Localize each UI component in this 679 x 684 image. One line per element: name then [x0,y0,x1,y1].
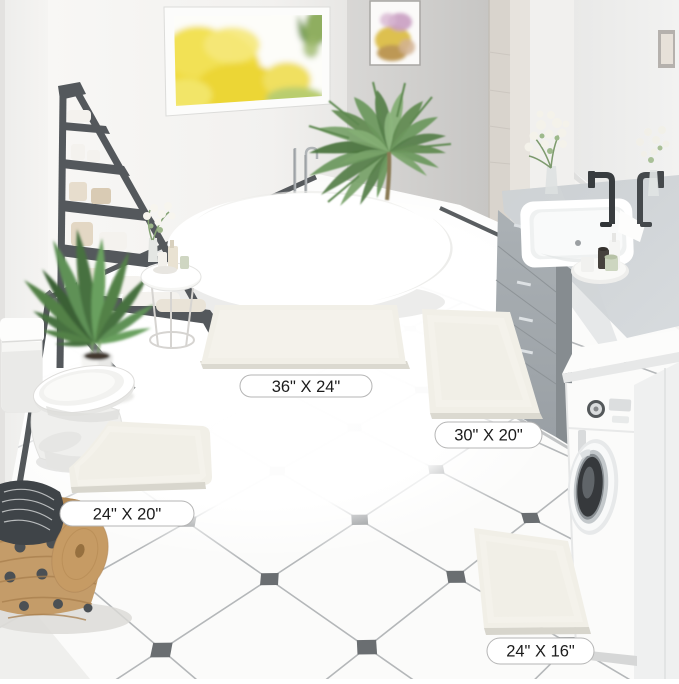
svg-text:36" X 24": 36" X 24" [272,378,341,396]
svg-text:24" X 16": 24" X 16" [506,643,575,661]
svg-text:30" X 20": 30" X 20" [454,427,523,445]
svg-text:24" X 20": 24" X 20" [93,506,162,524]
